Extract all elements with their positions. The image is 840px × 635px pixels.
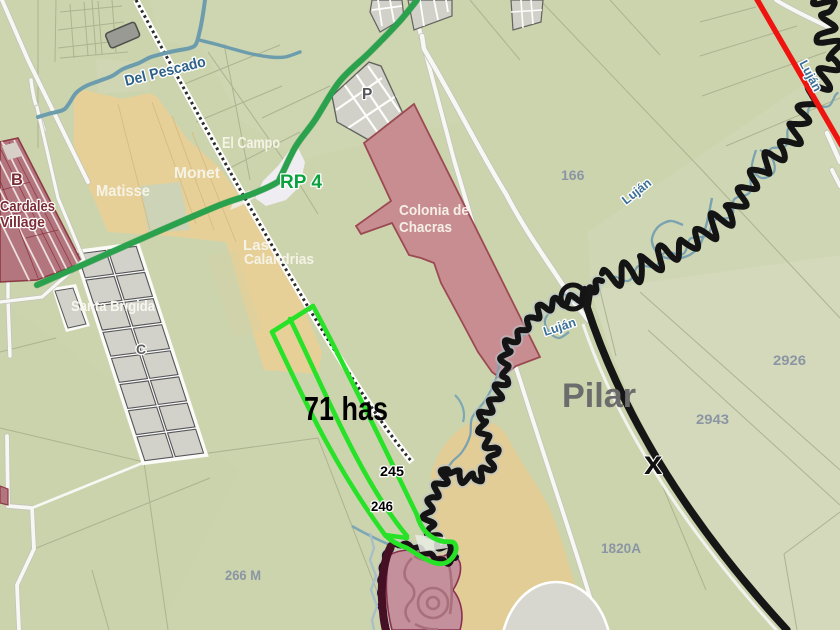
svg-text:245: 245: [380, 463, 404, 479]
svg-text:P: P: [362, 86, 372, 103]
svg-text:Cardales: Cardales: [0, 198, 55, 215]
svg-text:246: 246: [371, 498, 393, 514]
svg-text:Santa Brigida: Santa Brigida: [71, 299, 156, 315]
svg-text:Colonia de: Colonia de: [399, 202, 469, 219]
svg-text:C: C: [136, 341, 146, 357]
svg-text:El Campo: El Campo: [222, 135, 280, 152]
svg-text:166: 166: [561, 167, 585, 183]
svg-text:Village: Village: [0, 214, 45, 231]
svg-text:Calandrias: Calandrias: [244, 251, 314, 268]
svg-text:Matisse: Matisse: [96, 183, 150, 200]
svg-text:Chacras: Chacras: [399, 219, 452, 236]
svg-text:B: B: [11, 171, 23, 189]
svg-text:RP 4: RP 4: [280, 172, 322, 193]
svg-text:1820A: 1820A: [601, 540, 641, 556]
svg-text:x: x: [644, 444, 663, 481]
svg-text:71 has: 71 has: [304, 390, 388, 427]
svg-text:266 M: 266 M: [225, 567, 261, 583]
svg-text:Monet: Monet: [174, 165, 221, 182]
svg-text:2943: 2943: [696, 411, 729, 427]
svg-text:2926: 2926: [773, 352, 806, 368]
svg-text:Pilar: Pilar: [562, 377, 636, 415]
